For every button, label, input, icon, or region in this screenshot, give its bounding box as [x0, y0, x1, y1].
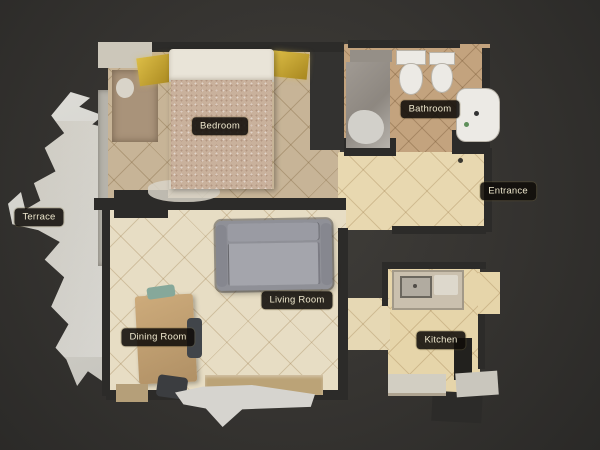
- kitchen-faucet-dot: [413, 284, 417, 288]
- bidet-bowl: [431, 63, 453, 93]
- kitchen-sink: [400, 276, 432, 298]
- kitchen-counter: [392, 270, 464, 310]
- living-left-wall: [102, 206, 110, 396]
- sideboard-wood-stub: [116, 384, 148, 402]
- living-right-wall: [338, 228, 348, 396]
- bedroom-right-shadow: [310, 44, 344, 150]
- kitchen-left-wall: [382, 262, 388, 306]
- bathroom-top-wall: [348, 40, 460, 48]
- shower-tray-highlight: [348, 110, 384, 144]
- bathroom-mirror-shelf: [350, 50, 392, 62]
- couch-backrest: [227, 222, 319, 242]
- kitchen-gray-wedge: [455, 371, 499, 398]
- bed-pillows: [169, 49, 274, 82]
- room-label-dining-room[interactable]: Dining Room: [121, 328, 194, 346]
- scan-artifact-blob: [175, 385, 315, 427]
- couch: [215, 219, 332, 291]
- bidet: [429, 52, 455, 92]
- kitchen-dish-area: [434, 275, 458, 295]
- terrace-shading: [30, 121, 106, 356]
- kitchen-top-wall: [384, 262, 486, 269]
- room-label-bedroom[interactable]: Bedroom: [192, 117, 248, 135]
- couch-seat: [228, 242, 321, 286]
- bathroom-sink: [456, 88, 500, 142]
- entrance-floor[interactable]: [338, 152, 486, 230]
- room-label-kitchen[interactable]: Kitchen: [416, 331, 465, 349]
- toilet-bowl: [399, 63, 423, 95]
- couch-armrest-left: [215, 225, 227, 287]
- wardrobe-contents: [116, 78, 134, 98]
- bathroom-green-marker: [464, 122, 469, 127]
- kitchen-lower-counter: [388, 374, 446, 396]
- room-label-bathroom[interactable]: Bathroom: [401, 100, 460, 118]
- entrance-bottom-wall: [392, 226, 486, 234]
- shower: [346, 62, 390, 148]
- kitchen-floor-extension: [478, 272, 500, 314]
- toilet: [396, 50, 426, 94]
- floorplan-viewport[interactable]: Bedroom Bathroom Entrance Terrace Living…: [0, 0, 600, 450]
- nightstand-lamp-right: [271, 50, 310, 80]
- kitchen-right-wall: [478, 314, 485, 369]
- entrance-floor-dot: [458, 158, 463, 163]
- room-label-living-room[interactable]: Living Room: [261, 291, 332, 309]
- room-label-terrace[interactable]: Terrace: [14, 208, 63, 226]
- sink-faucet-dot: [474, 111, 479, 116]
- couch-armrest-right: [320, 223, 332, 285]
- room-label-entrance[interactable]: Entrance: [480, 182, 536, 200]
